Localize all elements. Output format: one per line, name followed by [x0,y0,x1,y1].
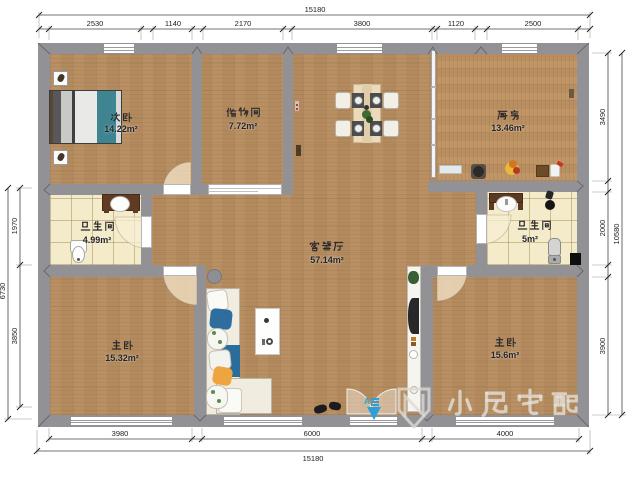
svg-text:3850: 3850 [10,328,19,345]
svg-text:6000: 6000 [304,429,321,438]
svg-text:2530: 2530 [87,19,104,28]
svg-text:6730: 6730 [0,283,7,300]
svg-text:1120: 1120 [448,19,464,28]
svg-text:3980: 3980 [112,429,129,438]
svg-text:3490: 3490 [598,109,607,126]
svg-text:2000: 2000 [598,220,607,237]
svg-text:3800: 3800 [354,19,371,28]
svg-text:2500: 2500 [525,19,542,28]
svg-text:10580: 10580 [612,224,621,245]
svg-text:15180: 15180 [303,454,324,463]
svg-text:1970: 1970 [10,218,19,235]
svg-text:2170: 2170 [235,19,252,28]
svg-text:3900: 3900 [598,338,607,355]
svg-text:4000: 4000 [497,429,514,438]
svg-text:15180: 15180 [305,5,326,14]
svg-text:1140: 1140 [165,19,181,28]
